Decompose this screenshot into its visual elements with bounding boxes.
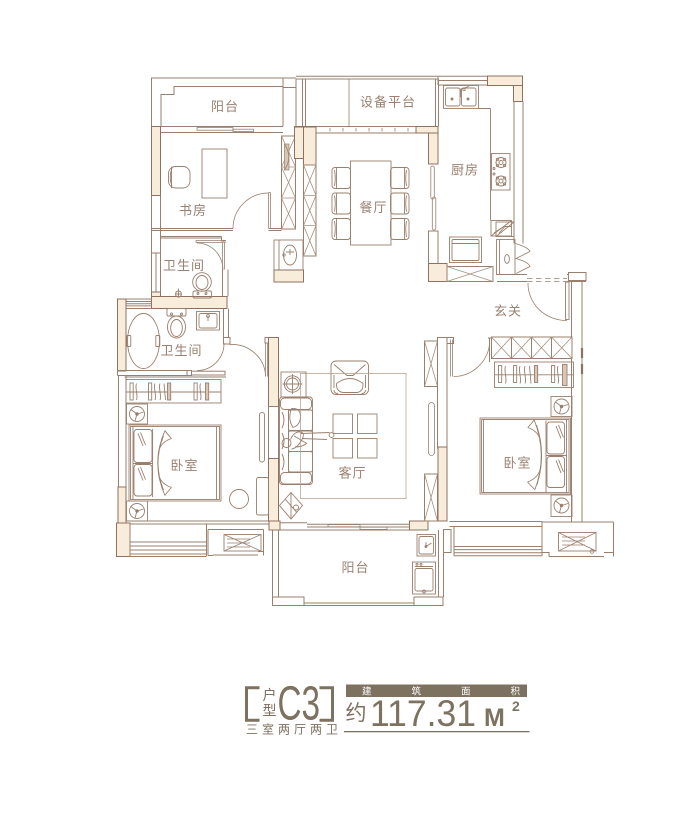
svg-text:卫生间: 卫生间 [160,343,202,358]
svg-text:客厅: 客厅 [338,466,366,481]
svg-text:卫生间: 卫生间 [163,258,205,273]
svg-text:型: 型 [263,703,277,719]
svg-text:卧室: 卧室 [170,458,198,473]
svg-text:玄关: 玄关 [494,304,522,319]
svg-text:设备平台: 设备平台 [360,95,416,110]
svg-text:卧室: 卧室 [503,456,531,471]
svg-text:书房: 书房 [179,203,207,218]
svg-text:厨房: 厨房 [451,163,479,178]
svg-text:约: 约 [346,702,367,725]
svg-text:2: 2 [512,698,520,714]
svg-text:阳台: 阳台 [341,560,369,575]
svg-text:阳台: 阳台 [211,99,239,114]
svg-text:餐厅: 餐厅 [359,200,387,215]
svg-text:户: 户 [263,687,277,703]
svg-text:M: M [484,704,505,732]
svg-text:117.31: 117.31 [370,693,476,734]
